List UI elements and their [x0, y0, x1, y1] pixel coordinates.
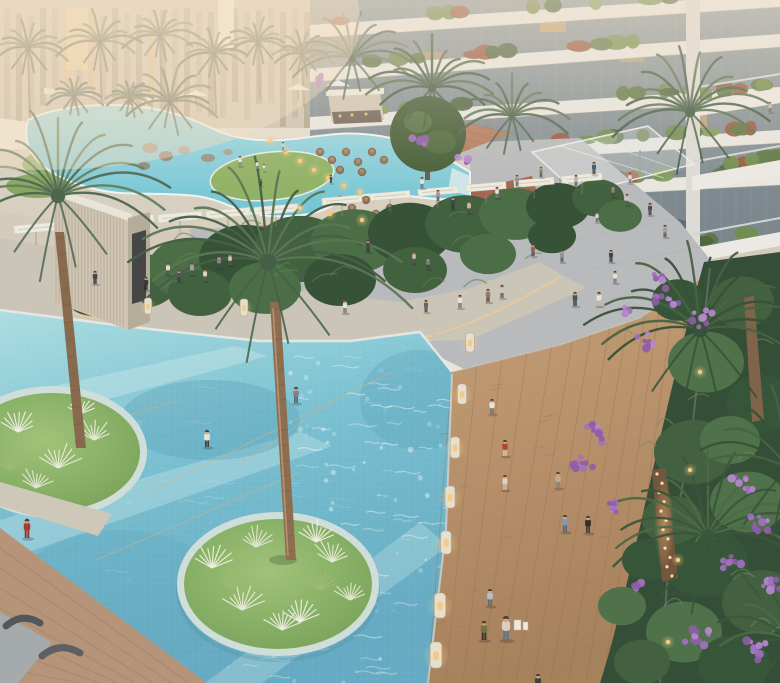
color-grade [0, 0, 780, 683]
scene-canvas [0, 0, 780, 683]
rendered-scene [0, 0, 780, 683]
